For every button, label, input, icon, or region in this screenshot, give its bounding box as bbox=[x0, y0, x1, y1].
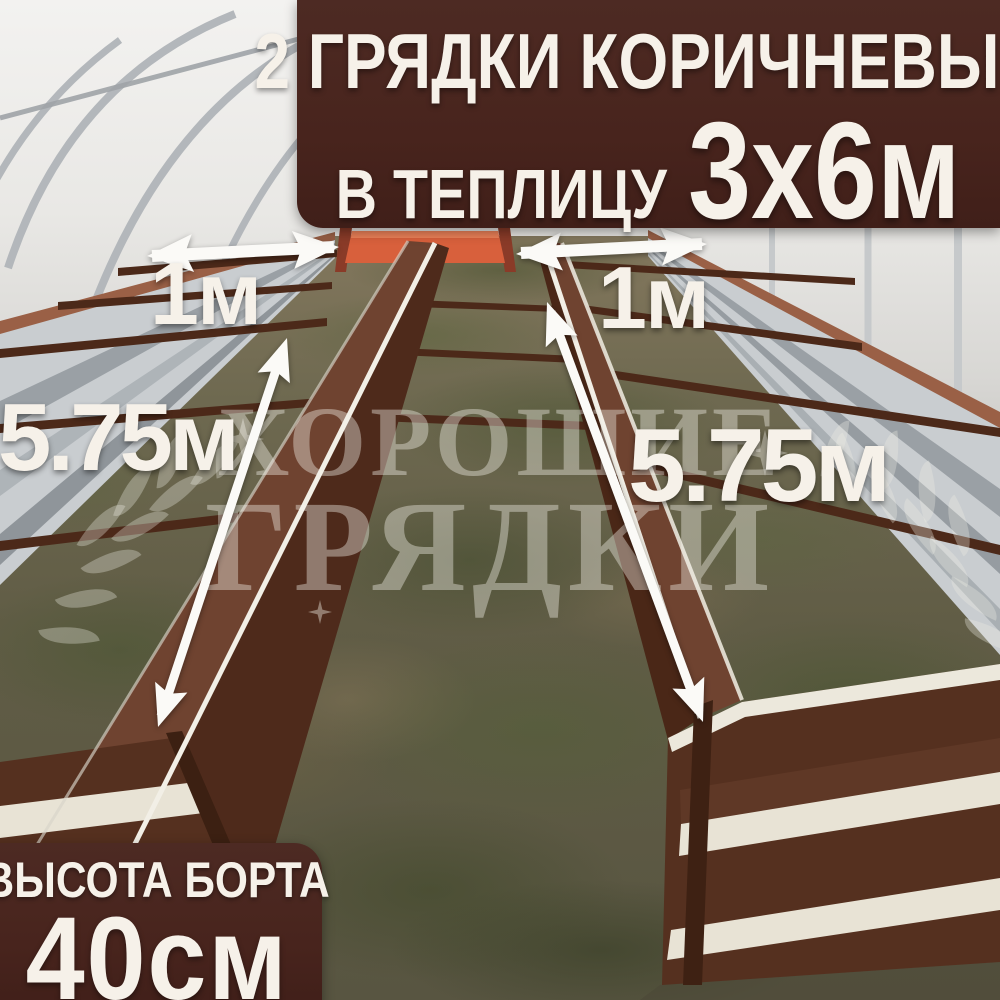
height-badge-value: 40см bbox=[26, 905, 289, 1000]
dimension-label-length-left: 5.75м bbox=[0, 390, 236, 486]
height-badge: ВЫСОТА БОРТА 40см bbox=[0, 843, 322, 1000]
banner-title: 2 ГРЯДКИ КОРИЧНЕВЫЕ bbox=[255, 22, 1000, 100]
dimension-label-width-right: 1м bbox=[598, 254, 708, 342]
dimension-label-length-right: 5.75м bbox=[628, 414, 887, 518]
dimension-label-width-left: 1м bbox=[150, 250, 260, 338]
banner-subtitle-text: В ТЕПЛИЦУ bbox=[336, 159, 667, 229]
banner-subtitle: В ТЕПЛИЦУ 3х6м bbox=[336, 102, 961, 240]
product-photo-card: ХОРОШИЕ ГРЯДКИ 1м 1м 5.75м bbox=[0, 0, 1000, 1000]
title-banner: 2 ГРЯДКИ КОРИЧНЕВЫЕ В ТЕПЛИЦУ 3х6м bbox=[297, 0, 1000, 228]
banner-size-value: 3х6м bbox=[688, 102, 961, 240]
